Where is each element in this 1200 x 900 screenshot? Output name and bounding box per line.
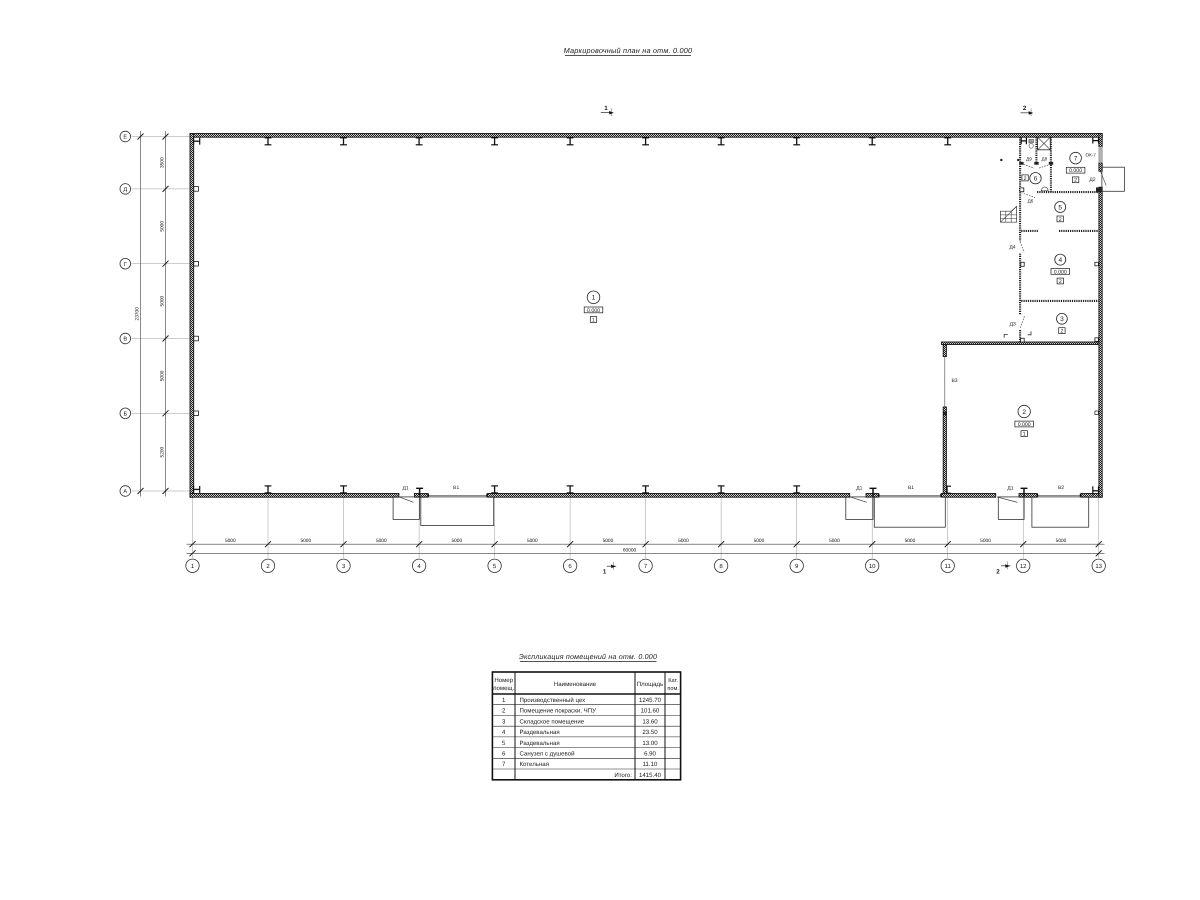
svg-text:5000: 5000 <box>980 538 991 544</box>
svg-text:ОК-7: ОК-7 <box>1086 153 1097 158</box>
svg-text:В1: В1 <box>908 485 914 491</box>
svg-text:2: 2 <box>996 569 1000 576</box>
svg-text:2: 2 <box>1059 279 1062 285</box>
svg-text:Номер: Номер <box>494 677 513 684</box>
svg-text:6: 6 <box>502 751 506 758</box>
svg-text:5000: 5000 <box>829 538 840 544</box>
svg-text:4: 4 <box>502 729 506 736</box>
svg-text:101.60: 101.60 <box>641 708 660 715</box>
svg-text:В3: В3 <box>951 378 957 384</box>
svg-text:Д9: Д9 <box>1026 156 1032 161</box>
svg-text:Д1: Д1 <box>856 485 862 491</box>
svg-text:5000: 5000 <box>1056 538 1067 544</box>
svg-text:5000: 5000 <box>225 538 236 544</box>
svg-text:Котельная: Котельная <box>520 761 550 768</box>
svg-text:3: 3 <box>502 718 506 725</box>
svg-text:Санузел с душевой: Санузел с душевой <box>520 751 575 758</box>
svg-text:1: 1 <box>502 697 506 704</box>
svg-text:Площадь: Площадь <box>637 681 664 688</box>
svg-text:2: 2 <box>502 708 506 715</box>
svg-text:Производственный цех: Производственный цех <box>520 697 586 704</box>
svg-text:1415.40: 1415.40 <box>639 772 662 779</box>
svg-text:5000: 5000 <box>905 538 916 544</box>
svg-text:5000: 5000 <box>160 221 166 232</box>
svg-text:1: 1 <box>604 105 608 112</box>
svg-text:5000: 5000 <box>527 538 538 544</box>
svg-text:Д2: Д2 <box>1089 177 1095 183</box>
svg-text:4: 4 <box>1058 257 1062 264</box>
svg-text:5000: 5000 <box>160 370 166 381</box>
svg-text:А: А <box>123 489 127 495</box>
svg-text:5000: 5000 <box>300 538 311 544</box>
svg-text:Раздевальная: Раздевальная <box>520 729 560 736</box>
svg-text:5000: 5000 <box>160 295 166 306</box>
svg-text:Е: Е <box>123 135 127 141</box>
svg-text:Кат.: Кат. <box>668 678 678 684</box>
svg-text:5000: 5000 <box>451 538 462 544</box>
svg-text:2: 2 <box>1060 329 1063 335</box>
svg-text:7: 7 <box>1074 155 1078 162</box>
svg-text:11: 11 <box>945 563 952 570</box>
svg-text:Итого:: Итого: <box>614 772 632 779</box>
svg-text:Д4: Д4 <box>1009 245 1015 251</box>
svg-text:5000: 5000 <box>754 538 765 544</box>
svg-text:0.000: 0.000 <box>1069 168 1082 174</box>
svg-text:10: 10 <box>869 563 876 570</box>
svg-text:2: 2 <box>1024 176 1027 182</box>
svg-text:1: 1 <box>592 295 596 302</box>
svg-text:В1: В1 <box>453 485 459 491</box>
svg-text:60000: 60000 <box>623 547 637 553</box>
svg-text:Д: Д <box>123 187 127 193</box>
svg-text:Д6: Д6 <box>1028 198 1034 203</box>
svg-text:12: 12 <box>1020 563 1027 570</box>
svg-text:6.90: 6.90 <box>644 751 656 758</box>
svg-text:Г: Г <box>124 262 127 268</box>
svg-text:13: 13 <box>1095 563 1102 570</box>
svg-text:7: 7 <box>502 761 506 768</box>
svg-text:23700: 23700 <box>135 307 141 321</box>
svg-text:1245.70: 1245.70 <box>639 697 662 704</box>
svg-text:0.000: 0.000 <box>1054 269 1067 275</box>
svg-text:В2: В2 <box>1058 485 1064 491</box>
svg-text:Экспликация помещений на отм.: Экспликация помещений на отм. 0.000 <box>519 653 657 661</box>
svg-text:6: 6 <box>1034 176 1038 183</box>
svg-text:Д1: Д1 <box>1007 485 1013 491</box>
svg-text:Д1: Д1 <box>403 485 409 491</box>
svg-text:В: В <box>123 337 127 343</box>
svg-text:1: 1 <box>603 569 607 576</box>
svg-text:3: 3 <box>1060 316 1064 323</box>
svg-text:Д3: Д3 <box>1010 321 1016 327</box>
svg-text:пом.: пом. <box>667 686 679 692</box>
svg-text:0.000: 0.000 <box>587 308 600 314</box>
svg-text:3500: 3500 <box>160 157 166 168</box>
svg-text:Наименование: Наименование <box>554 681 597 688</box>
svg-text:2: 2 <box>1074 178 1077 184</box>
svg-text:2: 2 <box>1023 105 1027 112</box>
svg-text:1: 1 <box>592 317 595 323</box>
svg-text:Д8: Д8 <box>1041 156 1047 161</box>
svg-text:Маркировочный план на отм. 0.0: Маркировочный план на отм. 0.000 <box>564 46 693 55</box>
svg-text:Помещение покраски, ЧПУ: Помещение покраски, ЧПУ <box>520 708 597 715</box>
svg-text:5200: 5200 <box>160 446 166 457</box>
svg-text:помещ.: помещ. <box>493 685 514 692</box>
svg-text:11.10: 11.10 <box>643 761 658 768</box>
svg-text:2: 2 <box>1022 409 1026 416</box>
svg-text:13.60: 13.60 <box>642 718 658 725</box>
svg-text:5000: 5000 <box>603 538 614 544</box>
svg-text:5: 5 <box>1058 204 1062 211</box>
svg-text:0.000: 0.000 <box>1018 422 1031 428</box>
svg-text:13.00: 13.00 <box>642 740 658 747</box>
svg-text:Раздевальная: Раздевальная <box>520 740 560 747</box>
svg-text:5000: 5000 <box>678 538 689 544</box>
svg-text:5: 5 <box>502 740 506 747</box>
svg-text:1: 1 <box>1023 432 1026 438</box>
svg-text:Б: Б <box>123 411 127 417</box>
svg-text:Складское помещение: Складское помещение <box>520 718 585 725</box>
svg-text:5000: 5000 <box>376 538 387 544</box>
svg-text:2: 2 <box>1059 217 1062 223</box>
svg-text:23.50: 23.50 <box>642 729 658 736</box>
